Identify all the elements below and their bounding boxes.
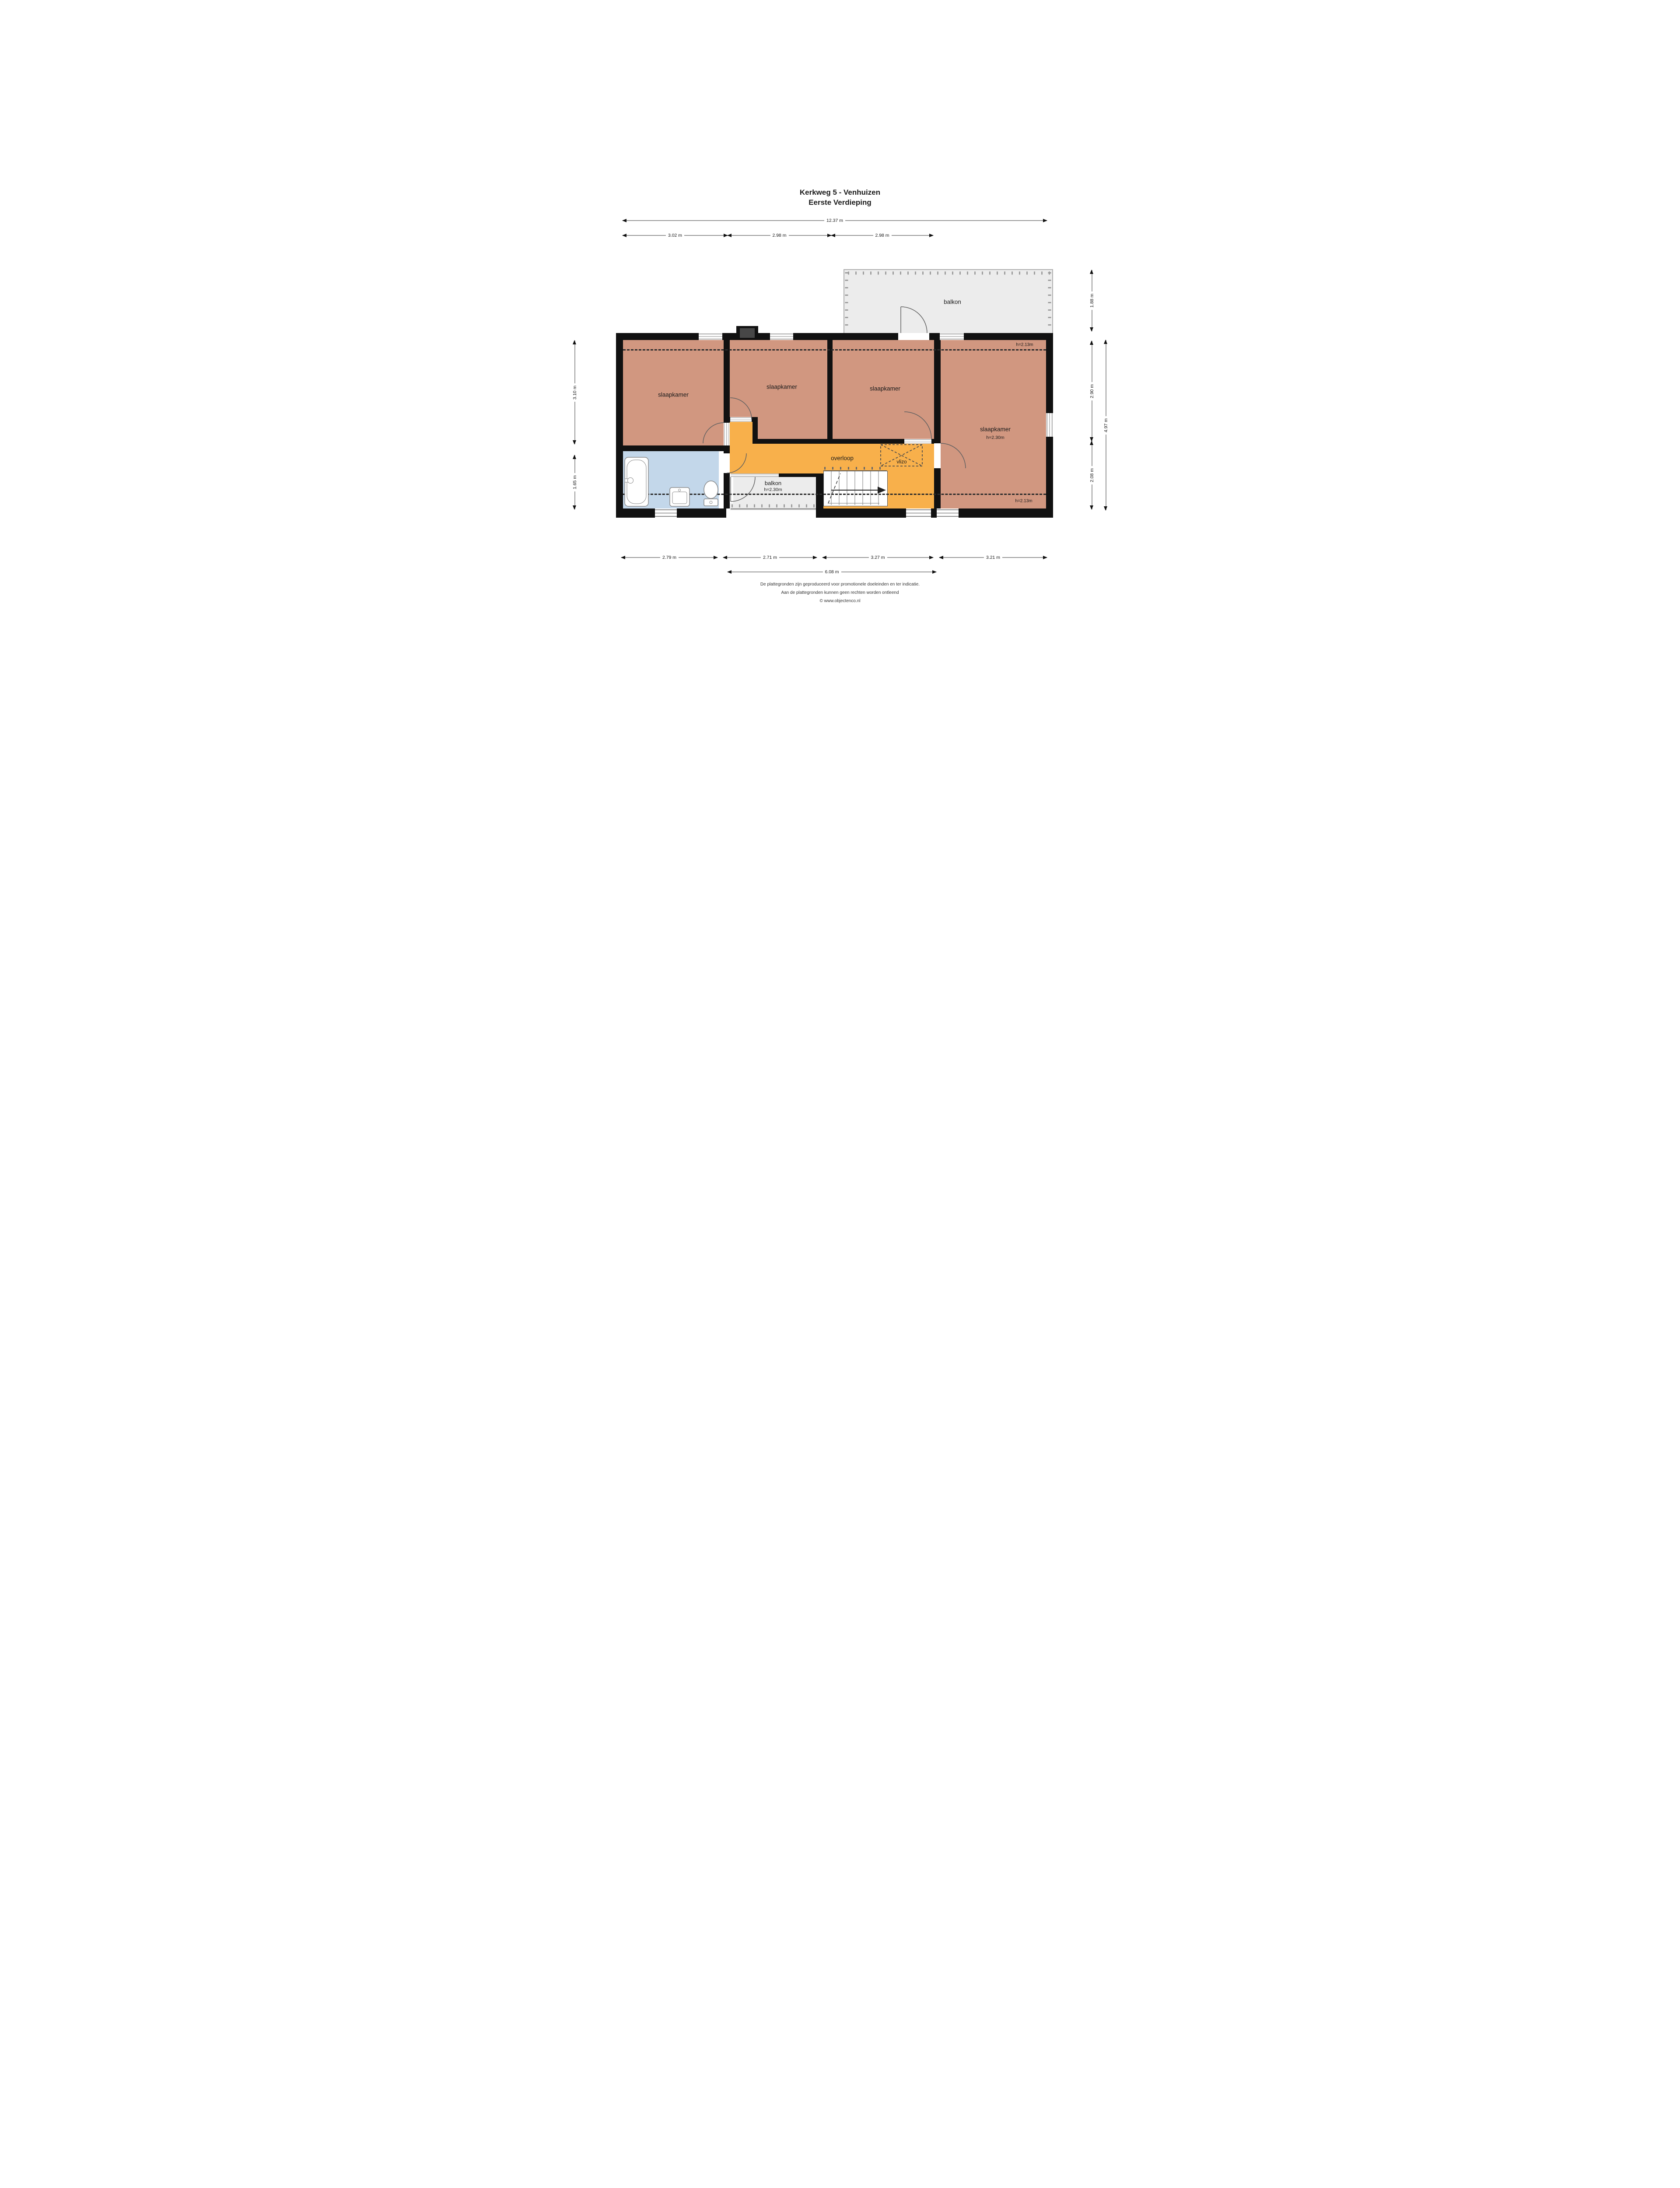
vlizo-label: vlizo xyxy=(896,459,906,465)
window-top-1 xyxy=(699,333,722,340)
dim-right-seg-2: 2.90 m xyxy=(1092,341,1092,441)
footer-line1: De plattegronden zijn geproduceerd voor … xyxy=(560,580,1120,589)
window-bottom-3 xyxy=(937,508,959,518)
window-balcony-band xyxy=(731,473,779,477)
door-balcony-top-opening xyxy=(898,333,929,340)
dim-right-total: 4.97 m xyxy=(1106,340,1106,510)
dim-bottom-seg-4-label: 3.21 m xyxy=(984,555,1002,560)
dim-bottom-seg-1: 2.79 m xyxy=(621,557,717,558)
door-bedroom1-opening xyxy=(724,423,730,445)
dim-bottom-seg-2: 2.71 m xyxy=(723,557,817,558)
dim-bottom-seg-2-label: 2.71 m xyxy=(761,555,779,560)
dim-right-seg-3-label: 2.08 m xyxy=(1089,466,1095,484)
bedroom-2-label: slaapkamer xyxy=(766,384,797,390)
dim-top-total: 12.37 m xyxy=(623,220,1047,221)
staircase xyxy=(823,471,888,506)
dim-bottom-total: 6.08 m xyxy=(728,572,936,572)
dim-left-seg-2: 1.65 m xyxy=(574,455,575,509)
window-right xyxy=(1046,413,1053,437)
balcony-bottom-label: balkon xyxy=(765,480,781,487)
floorplan-page: Kerkweg 5 - Venhuizen Eerste Verdieping … xyxy=(560,0,1120,792)
wall-balcony-bottom-right xyxy=(816,473,823,508)
door-bedroom2-opening xyxy=(730,417,752,422)
dim-right-total-label: 4.97 m xyxy=(1103,416,1109,434)
wall-bottom-right xyxy=(816,508,1053,518)
wall-bedroom2-bedroom3 xyxy=(827,340,833,439)
dim-bottom-total-label: 6.08 m xyxy=(822,569,841,575)
bedroom-4-label: slaapkamer xyxy=(980,426,1011,433)
dim-top-seg-1: 3.02 m xyxy=(623,235,728,236)
ceiling-height-top-label: h=2.13m xyxy=(1016,343,1033,347)
window-bottom-2 xyxy=(906,508,931,518)
bedroom-4-height-label: h=2.30m xyxy=(986,435,1004,440)
dim-right-seg-1-label: 1.88 m xyxy=(1089,291,1095,310)
bedroom-4-floor xyxy=(941,340,1046,508)
dim-top-seg-2: 2.98 m xyxy=(728,235,831,236)
door-bedroom4-opening xyxy=(934,443,941,468)
dim-bottom-seg-3-label: 3.27 m xyxy=(868,555,887,560)
bedroom-3-label: slaapkamer xyxy=(870,386,900,392)
landing-arm-floor xyxy=(730,419,752,473)
wall-bedroom4-left xyxy=(934,340,941,508)
dim-top-seg-3-label: 2.98 m xyxy=(873,233,891,238)
wall-top xyxy=(616,333,1053,340)
dim-left-seg-1-label: 3.10 m xyxy=(572,383,577,401)
ceiling-height-line-bottom xyxy=(623,494,1046,495)
window-bottom-1 xyxy=(655,508,677,518)
dim-right-seg-2-label: 2.90 m xyxy=(1089,382,1095,400)
bedroom-1-label: slaapkamer xyxy=(658,392,689,398)
door-bedroom3-opening xyxy=(904,439,931,444)
wall-landing-notch xyxy=(752,417,758,439)
landing-mid-floor xyxy=(752,439,823,473)
page-title-line2: Eerste Verdieping xyxy=(560,198,1120,207)
dim-bottom-seg-3: 3.27 m xyxy=(822,557,933,558)
dim-left-seg-2-label: 1.65 m xyxy=(572,473,577,491)
dim-bottom-seg-4: 3.21 m xyxy=(939,557,1047,558)
window-top-3 xyxy=(940,333,964,340)
page-title-line1: Kerkweg 5 - Venhuizen xyxy=(560,188,1120,197)
dim-left-seg-1: 3.10 m xyxy=(574,340,575,444)
dim-right-seg-1: 1.88 m xyxy=(1092,270,1092,331)
landing-label: overloop xyxy=(831,455,854,462)
window-top-2 xyxy=(770,333,793,340)
balcony-top-label: balkon xyxy=(944,299,961,305)
wall-left xyxy=(616,333,623,518)
door-bathroom-opening xyxy=(724,453,730,473)
ceiling-height-line-top xyxy=(623,349,1046,351)
balcony-bottom-height-label: h=2.30m xyxy=(764,487,782,492)
footer-line3: © www.objectenco.nl xyxy=(560,597,1120,605)
chimney-flue xyxy=(740,328,755,338)
dim-top-seg-2-label: 2.98 m xyxy=(770,233,788,238)
dim-top-seg-1-label: 3.02 m xyxy=(666,233,684,238)
footer-line2: Aan de plattegronden kunnen geen rechten… xyxy=(560,589,1120,597)
dim-top-seg-3: 2.98 m xyxy=(831,235,933,236)
dim-bottom-seg-1-label: 2.79 m xyxy=(660,555,679,560)
dim-top-total-label: 12.37 m xyxy=(824,218,845,223)
wall-bedroom1-bathroom xyxy=(616,445,730,451)
dim-right-seg-3: 2.08 m xyxy=(1092,441,1092,509)
ceiling-height-bottom-label: h=2.13m xyxy=(1015,499,1032,504)
bathroom-floor xyxy=(623,451,719,508)
door-balcony-bottom-opening xyxy=(730,477,733,503)
